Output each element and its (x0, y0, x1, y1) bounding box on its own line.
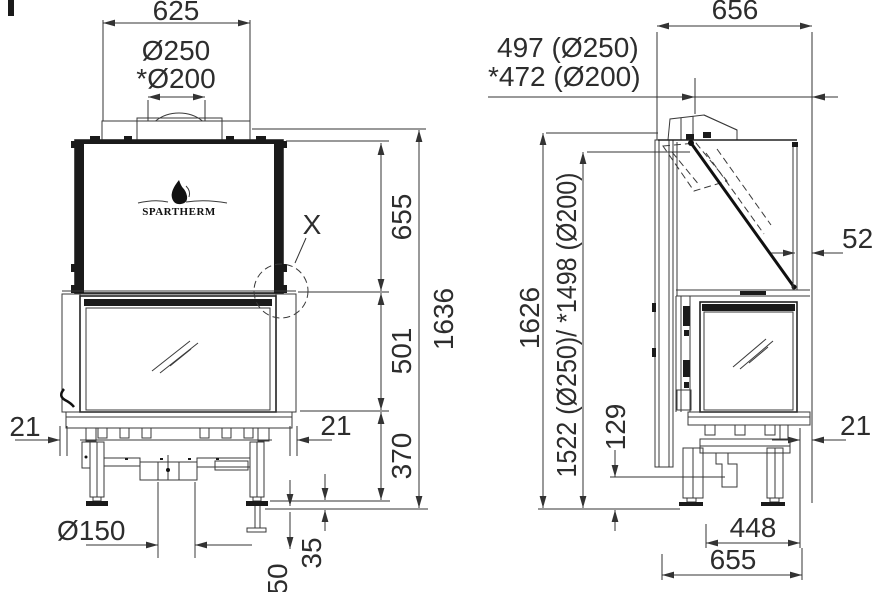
flue-stub (668, 115, 737, 140)
dim-flue-height: 1522 (Ø250)/ *1498 (Ø200) (551, 173, 582, 478)
dim-base-height: 370 (386, 433, 417, 480)
hood-diagonal-brace (691, 143, 794, 287)
door-latch (61, 389, 74, 407)
dim-flue-center-250: 497 (Ø250) (497, 32, 639, 63)
dim-depth-base: 655 (710, 544, 757, 575)
fireplace-technical-drawing: SPARTHERM (0, 0, 892, 592)
dim-hood-height: 655 (386, 194, 417, 241)
dim-width-top: 625 (153, 0, 200, 26)
side-view: 656 497 (Ø250) *472 (Ø200) 52 1626 1522 … (488, 0, 873, 580)
brand-logo-text: SPARTHERM (142, 206, 216, 218)
dim-flue-inner: *Ø200 (136, 63, 215, 94)
dim-offset-right: 21 (320, 410, 351, 441)
dim-intake: Ø150 (57, 515, 126, 546)
left-rail (75, 140, 84, 293)
crop-artifact (8, 0, 14, 16)
dim-floor-clearance: 50 (262, 563, 293, 592)
rear-panel (655, 140, 673, 467)
door-frame (80, 296, 276, 412)
dim-flue-outer: Ø250 (142, 35, 211, 66)
dim-leg-spacing: 448 (730, 512, 777, 543)
dim-front-gap: 52 (842, 223, 873, 254)
left-foot (86, 501, 108, 506)
brand-logo: SPARTHERM (138, 180, 227, 218)
dim-offset-front: 21 (840, 410, 871, 441)
side-glass-frame (700, 302, 797, 412)
dim-total-height: 1636 (428, 288, 459, 350)
flame-icon (172, 180, 187, 204)
right-rail (274, 140, 283, 293)
base-plate (66, 412, 292, 428)
dim-foot-adjust: 35 (296, 537, 327, 568)
left-trim (62, 294, 80, 412)
dim-flue-center-200: *472 (Ø200) (488, 61, 641, 92)
dim-depth-top: 656 (712, 0, 759, 25)
dim-base-clearance: 129 (600, 404, 631, 451)
front-view: SPARTHERM (9, 0, 458, 592)
side-base-plate (688, 412, 810, 425)
right-foot (246, 501, 268, 506)
dim-offset-left: 21 (9, 411, 40, 442)
side-glass (704, 312, 793, 410)
dim-side-total-height: 1626 (514, 287, 545, 349)
right-trim (276, 294, 296, 412)
dim-door-height: 501 (386, 328, 417, 375)
convection-bracket (716, 453, 737, 487)
detail-marker-x: X (303, 209, 322, 240)
